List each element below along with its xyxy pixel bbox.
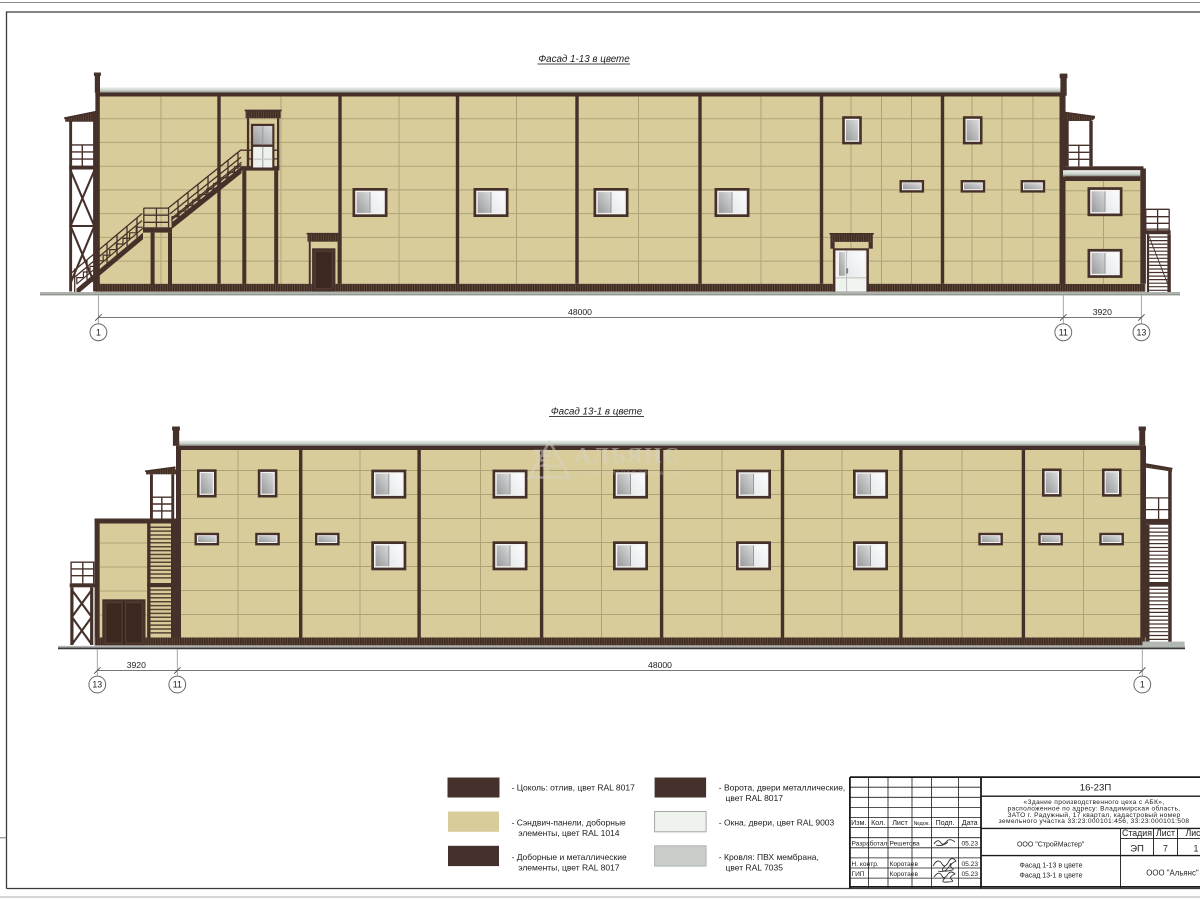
svg-text:Коротаев: Коротаев	[890, 861, 919, 868]
svg-text:Стадия: Стадия	[1122, 828, 1152, 838]
svg-text:3920: 3920	[1093, 307, 1112, 317]
svg-text:№док.: №док.	[914, 821, 931, 827]
svg-text:Фасад 1-13 в цвете: Фасад 1-13 в цвете	[1019, 862, 1082, 869]
svg-text:05.23: 05.23	[962, 840, 979, 847]
svg-text:- Окна, двери, цвет RAL 9003: - Окна, двери, цвет RAL 9003	[719, 818, 835, 828]
svg-text:СТРОИТЕЛЬНАЯ КОМПАНИЯ: СТРОИТЕЛЬНАЯ КОМПАНИЯ	[578, 471, 680, 477]
svg-text:элементы, цвет RAL 1014: элементы, цвет RAL 1014	[518, 828, 620, 838]
svg-text:Кол.: Кол.	[871, 818, 885, 827]
svg-text:Фасад 1-13 в цвете: Фасад 1-13 в цвете	[538, 54, 630, 65]
svg-text:Н. контр.: Н. контр.	[852, 861, 879, 868]
svg-text:05.23: 05.23	[962, 871, 979, 878]
svg-text:ООО "СтройМастер": ООО "СтройМастер"	[1017, 840, 1085, 848]
svg-text:Коротаев: Коротаев	[890, 871, 919, 878]
svg-text:цвет RAL 8017: цвет RAL 8017	[726, 793, 784, 803]
svg-text:13: 13	[92, 680, 102, 690]
svg-text:Фасад 13-1 в цвете: Фасад 13-1 в цвете	[1019, 873, 1082, 880]
svg-text:ООО "Альянс": ООО "Альянс"	[1146, 868, 1199, 877]
svg-text:48000: 48000	[648, 660, 672, 670]
svg-text:16-23П: 16-23П	[1080, 783, 1112, 794]
svg-text:- Цоколь: отлив, цвет RAL 8017: - Цоколь: отлив, цвет RAL 8017	[512, 783, 636, 793]
svg-text:цвет RAL 7035: цвет RAL 7035	[726, 863, 784, 873]
svg-text:земельного участка 33:23:00010: земельного участка 33:23:000101:456, 33:…	[999, 818, 1190, 825]
svg-text:3920: 3920	[127, 660, 146, 670]
svg-text:1: 1	[1194, 844, 1199, 854]
svg-text:Лист: Лист	[892, 818, 908, 827]
svg-text:13: 13	[1137, 327, 1147, 337]
svg-text:11: 11	[173, 680, 182, 690]
svg-text:ЭП: ЭП	[1130, 844, 1144, 855]
svg-text:Дата: Дата	[962, 818, 978, 827]
svg-text:Лис: Лис	[1185, 828, 1200, 838]
svg-text:Разработал: Разработал	[852, 839, 888, 847]
svg-text:ГИП: ГИП	[852, 871, 865, 878]
svg-text:элементы, цвет RAL 8017: элементы, цвет RAL 8017	[518, 863, 620, 873]
svg-text:Изм.: Изм.	[851, 818, 866, 827]
svg-text:Лист: Лист	[1156, 828, 1175, 838]
svg-text:Решетова: Решетова	[890, 840, 921, 847]
svg-text:7: 7	[1163, 844, 1168, 854]
svg-text:- Сэндвич-панели, доборные: - Сэндвич-панели, доборные	[512, 818, 627, 828]
svg-text:1: 1	[1140, 680, 1145, 690]
svg-text:1: 1	[96, 327, 101, 337]
svg-text:Подп.: Подп.	[935, 818, 954, 827]
svg-text:- Доборные и металлические: - Доборные и металлические	[512, 852, 627, 862]
svg-text:11: 11	[1059, 327, 1068, 337]
svg-text:48000: 48000	[568, 307, 592, 317]
svg-text:- Кровля: ПВХ мембрана,: - Кровля: ПВХ мембрана,	[719, 852, 819, 862]
svg-text:Фасад 13-1 в цвете: Фасад 13-1 в цвете	[551, 407, 643, 418]
svg-text:АЛЬЯНС: АЛЬЯНС	[575, 442, 682, 467]
svg-text:05.23: 05.23	[962, 861, 979, 868]
svg-text:- Ворота, двери металлические,: - Ворота, двери металлические,	[719, 783, 846, 793]
